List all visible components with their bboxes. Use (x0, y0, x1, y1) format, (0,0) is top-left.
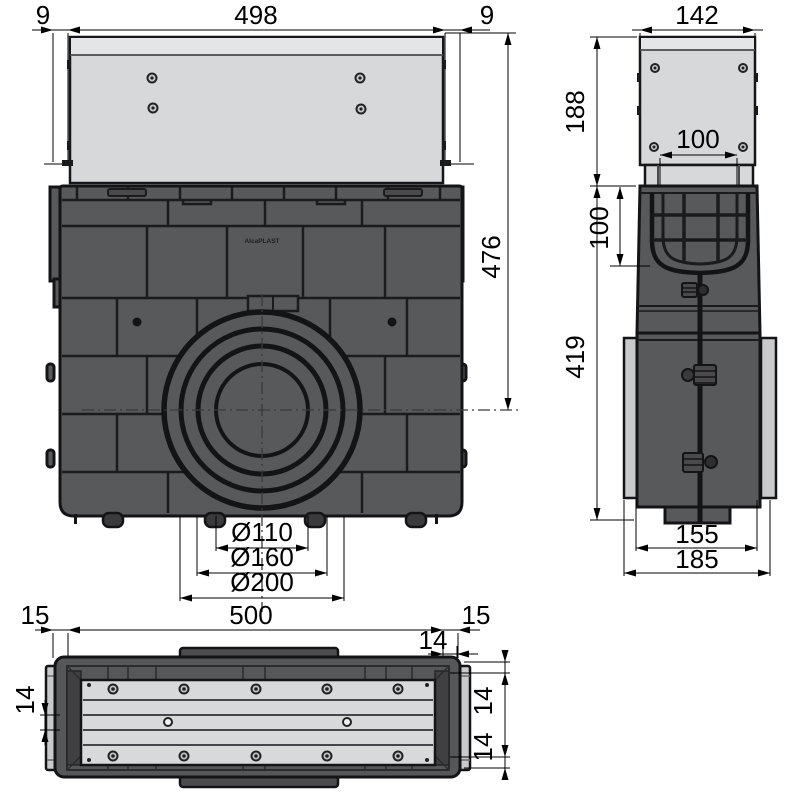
front-extension-box (62, 37, 451, 183)
outlet-diameter-dimensions: Ø110 Ø160 Ø200 (180, 516, 344, 602)
fixing-hole (388, 318, 397, 327)
dim-bottom-offset-right: 15 (462, 600, 491, 630)
side-top-dimension: 142 (632, 0, 763, 37)
dim-side-channel-width: 100 (676, 124, 719, 154)
dim-side-extension-height: 188 (560, 90, 590, 133)
side-nub (47, 450, 54, 467)
dim-front-top-width: 498 (234, 0, 277, 30)
dim-bottom-length: 500 (229, 600, 272, 630)
latch-hook (62, 160, 73, 166)
dim-side-overall-depth: 185 (675, 544, 718, 574)
side-gully-body (624, 186, 776, 523)
dim-outlet-200: Ø200 (230, 567, 294, 597)
drain-hole (343, 718, 351, 726)
edge-nub (637, 73, 641, 82)
side-nub (47, 364, 54, 381)
dim-bottom-rib-width: 14 (10, 686, 40, 715)
front-gully-body: AlcaPLAST (47, 186, 466, 527)
rim-slot (108, 189, 146, 196)
bottom-grate (81, 680, 435, 765)
bottom-view: 15 500 15 14 (10, 600, 510, 787)
edge-nub (67, 60, 71, 69)
drain-hole (164, 718, 172, 726)
dim-bottom-offset-left: 15 (21, 600, 50, 630)
edge-nub (442, 141, 446, 150)
dim-side-top-width: 142 (675, 0, 718, 30)
fixing-hole (133, 318, 142, 327)
dim-bottom-corner-offset: 14 (419, 625, 448, 655)
edge-nub (754, 73, 758, 82)
front-view: 9 498 9 476 (32, 0, 520, 612)
edge-nub (442, 60, 446, 69)
drawing-svg: 9 498 9 476 (0, 0, 800, 800)
frame-side-strip (67, 671, 81, 765)
edge-nub (637, 106, 641, 115)
side-extension-box (637, 37, 758, 186)
technical-drawing-canvas: 9 498 9 476 (0, 0, 800, 800)
dim-front-offset-right: 9 (480, 0, 494, 30)
dim-front-offset-left: 9 (36, 0, 50, 30)
rim-slot (384, 189, 422, 196)
dim-side-body-height: 419 (560, 335, 590, 378)
brand-logo: AlcaPLAST (244, 238, 279, 245)
dim-bottom-wall-bottom: 14 (468, 733, 498, 762)
dim-front-height-to-axis: 476 (476, 235, 506, 278)
dim-bottom-wall-top: 14 (468, 687, 498, 716)
latch-hook (440, 160, 451, 166)
edge-nub (67, 141, 71, 150)
edge-nub (754, 106, 758, 115)
flange-side-plate (761, 338, 776, 498)
clip-small (682, 283, 708, 297)
frame-side-strip (435, 671, 449, 765)
dim-side-channel-depth: 100 (584, 206, 614, 249)
side-view: 142 100 (560, 0, 776, 577)
